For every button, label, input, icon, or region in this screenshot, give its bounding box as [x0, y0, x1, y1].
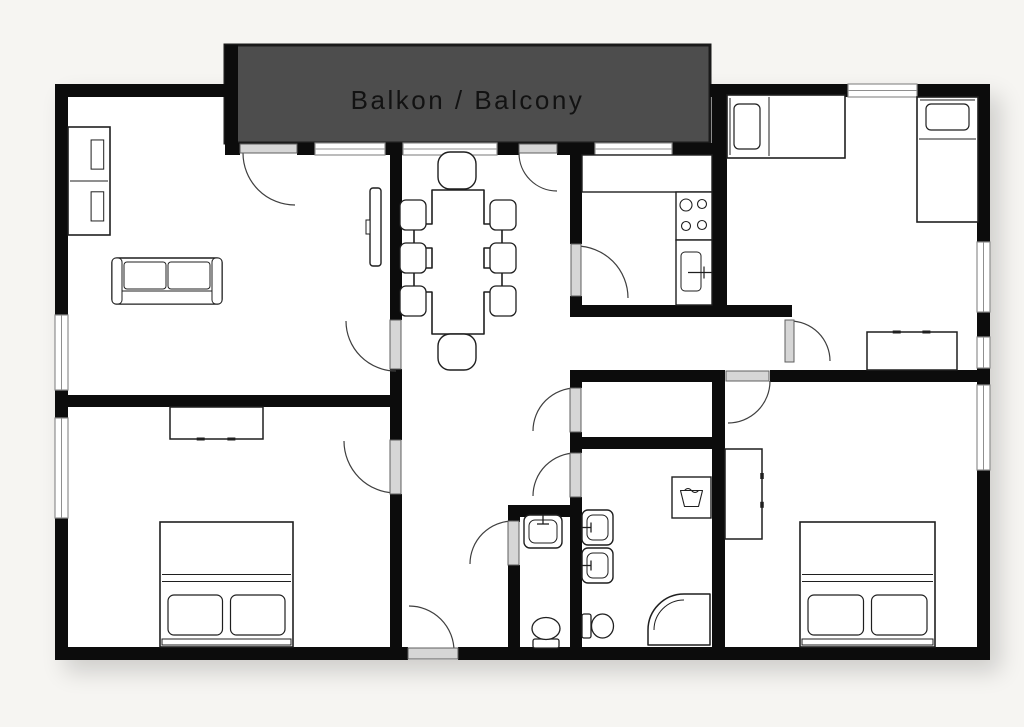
chair-seat	[438, 152, 476, 189]
wardrobe	[725, 449, 762, 539]
wall-segment	[977, 84, 990, 242]
wall-segment	[458, 647, 990, 660]
sofa-arm	[212, 258, 222, 304]
wall-unit	[68, 127, 110, 235]
toilet-tank	[533, 639, 559, 648]
stove	[676, 192, 712, 240]
toilet-bowl	[592, 614, 614, 638]
window	[977, 242, 990, 312]
wall-segment	[570, 370, 725, 382]
bedroom-tr-door-leaf	[785, 320, 794, 362]
wall-segment	[55, 647, 408, 660]
tv-mount	[366, 220, 370, 234]
dining-chair	[490, 286, 516, 316]
pillow	[734, 104, 760, 149]
bathroom-sink-1	[582, 510, 613, 545]
window	[848, 84, 917, 97]
wall-segment	[977, 470, 990, 660]
dresser-body	[170, 407, 263, 439]
wardrobe-body	[725, 449, 762, 539]
dining-chair	[400, 200, 426, 230]
sink-basin	[681, 252, 701, 291]
wall-segment	[712, 370, 725, 647]
sofa	[112, 258, 222, 304]
kitchen-sink	[676, 240, 712, 305]
wall-segment	[390, 494, 402, 647]
dresser-bedroom-bl	[170, 407, 263, 439]
chair-seat	[438, 334, 476, 370]
window	[977, 337, 990, 368]
storage-door-leaf	[570, 388, 581, 432]
dresser-bedroom-tr	[867, 332, 957, 370]
chair-seat	[400, 286, 426, 316]
stove-top	[676, 192, 712, 240]
bathroom-door-leaf	[570, 453, 581, 497]
bed-single-right	[917, 97, 978, 222]
bedroom-bl-door-leaf	[390, 440, 401, 494]
dining-chair	[490, 243, 516, 273]
washing-machine	[672, 477, 711, 518]
bedroom-br-door-leaf	[726, 371, 769, 381]
wall-segment	[570, 305, 792, 317]
window	[315, 143, 385, 155]
balcony-door-dining-leaf	[519, 144, 557, 153]
shelf-notch	[91, 140, 104, 169]
headboard	[802, 639, 933, 645]
wc-toilet	[532, 618, 560, 649]
bathroom-sink-2	[582, 548, 613, 583]
sofa-arm	[112, 258, 122, 304]
wall-segment	[60, 395, 390, 407]
counter-top	[582, 155, 712, 192]
window	[55, 418, 68, 518]
sofa-back	[112, 291, 222, 304]
pillow	[231, 595, 286, 635]
wall-segment	[712, 84, 727, 317]
sofa-cushion	[168, 262, 210, 289]
toilet-bowl	[532, 618, 560, 640]
entrance-door-leaf	[408, 648, 458, 659]
dining-chair	[490, 200, 516, 230]
sofa-cushion	[124, 262, 166, 289]
kitchen-counter	[582, 155, 712, 192]
headboard	[162, 639, 291, 645]
window	[977, 385, 990, 470]
tv-screen	[370, 188, 381, 266]
dresser-body	[867, 332, 957, 370]
wall-segment	[508, 565, 520, 647]
chair-seat	[490, 286, 516, 316]
dining-chair	[438, 334, 476, 370]
pillow	[872, 595, 928, 635]
wall-segment	[385, 143, 403, 155]
bed-double-bottom-right	[800, 522, 935, 647]
balcony-label: Balkon / Balcony	[225, 83, 710, 117]
wall-segment	[390, 369, 402, 440]
wall-segment	[770, 370, 990, 382]
wall-segment	[55, 84, 68, 315]
wall-segment	[570, 497, 582, 647]
washer-body	[672, 477, 711, 518]
wall-segment	[977, 312, 990, 337]
chair-seat	[490, 243, 516, 273]
wc-door-leaf	[508, 521, 519, 565]
pillow	[808, 595, 864, 635]
window	[55, 315, 68, 390]
kitchen-door-leaf	[571, 244, 581, 296]
bed-single-left	[727, 95, 845, 158]
dining-chair	[400, 286, 426, 316]
wall-segment	[570, 437, 715, 449]
wall-segment	[570, 370, 582, 388]
wall-segment	[297, 143, 315, 155]
bathroom-toilet	[582, 614, 614, 638]
shelf-notch	[91, 192, 104, 221]
pillow	[926, 104, 969, 130]
toilet-tank	[582, 614, 591, 638]
window	[595, 143, 672, 155]
floor-plan: Balkon / Balcony	[0, 0, 1024, 727]
wc-sink	[524, 515, 562, 548]
chair-seat	[490, 200, 516, 230]
wall-segment	[225, 143, 240, 155]
wall-segment	[508, 505, 520, 522]
chair-seat	[400, 200, 426, 230]
living-room-door-leaf	[390, 320, 401, 369]
balcony-door-living-leaf	[240, 144, 297, 153]
wall-segment	[55, 84, 238, 97]
wall-segment	[570, 155, 582, 244]
chair-seat	[400, 243, 426, 273]
dining-chair	[438, 152, 476, 189]
dining-chair	[400, 243, 426, 273]
pillow	[168, 595, 223, 635]
wall-segment	[497, 143, 519, 155]
wall-segment	[557, 143, 595, 155]
bed-double-bottom-left	[160, 522, 293, 647]
wall-segment	[55, 518, 68, 660]
